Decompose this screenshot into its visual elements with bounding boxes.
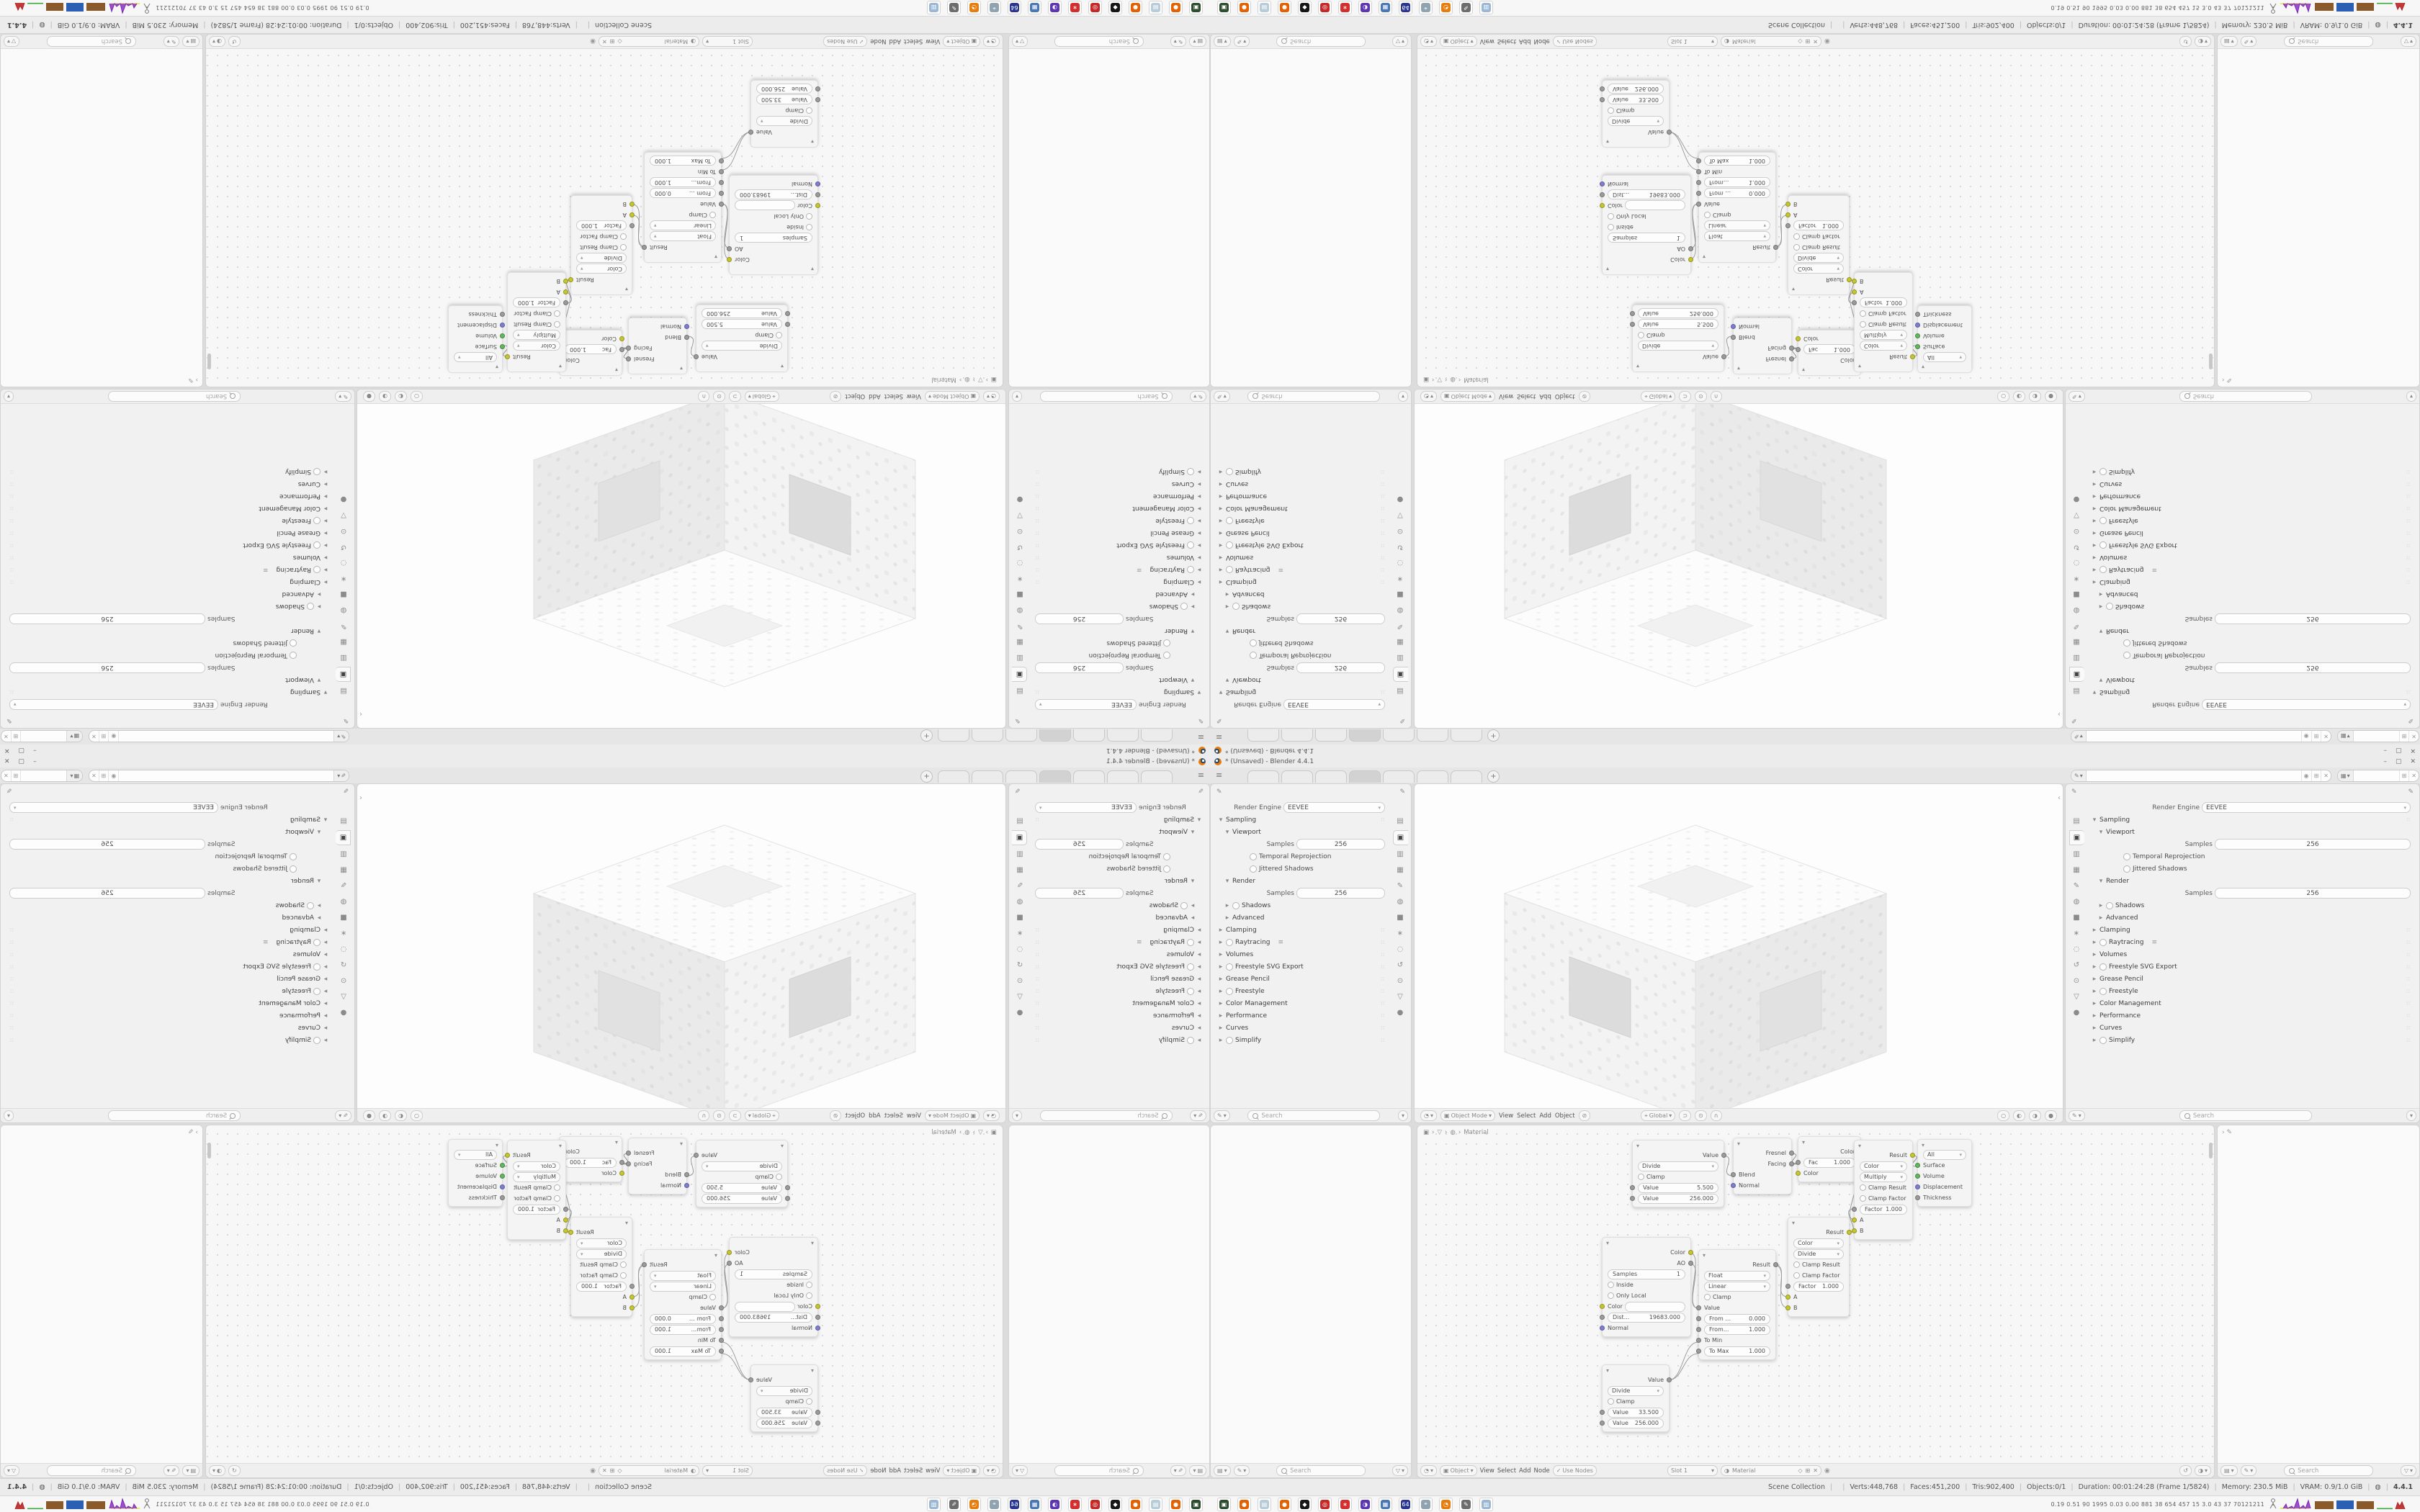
property-section-row[interactable]: ▸ Simplify ∷: [1214, 466, 1389, 478]
material-output-node[interactable]: ▾ All▾SurfaceVolumeDisplacementThickness: [448, 305, 503, 373]
use-nodes-checkbox[interactable]: ✓Use Nodes: [823, 1465, 867, 1476]
refresh-button[interactable]: ↺: [2179, 1465, 2192, 1476]
property-section-row[interactable]: ▸ Volumes ∷: [1031, 552, 1206, 564]
property-section-row[interactable]: ▸ Shadows: [5, 600, 333, 613]
number-field[interactable]: Value33.500: [756, 95, 812, 105]
input-socket[interactable]: [785, 311, 790, 316]
property-section-row[interactable]: ▸ Raytracing ≡ ∷: [2087, 564, 2415, 576]
workspace-tab-2[interactable]: [1315, 729, 1347, 742]
number-field[interactable]: To Max1.000: [650, 156, 716, 166]
pin-icon[interactable]: ◉: [1824, 1467, 1830, 1475]
shader-type-dropdown[interactable]: ▣Object▾: [1440, 1465, 1477, 1476]
drag-dots-icon[interactable]: ∷: [9, 690, 13, 696]
world-tab[interactable]: ◍: [336, 603, 351, 617]
input-socket[interactable]: [1696, 202, 1701, 207]
property-section-row[interactable]: ▾ Render: [1214, 875, 1389, 887]
workspace-tab-1[interactable]: [1107, 729, 1139, 742]
snap-control-1[interactable]: ⊙: [1695, 1110, 1707, 1121]
search-input[interactable]: Search: [1054, 1465, 1144, 1476]
copy-icon[interactable]: ⊞: [99, 731, 109, 742]
orientation-dropdown[interactable]: ⌖Global▾: [1641, 1110, 1675, 1121]
mix-color-node-b[interactable]: ▾ ResultColor▾Divide▾Clamp ResultClamp F…: [570, 1217, 632, 1317]
viewlayer-name-field[interactable]: [2354, 731, 2399, 742]
number-field[interactable]: Value256.000: [756, 1418, 812, 1428]
node-collapse-header[interactable]: ▾: [1633, 362, 1724, 370]
checkbox[interactable]: [1638, 1174, 1644, 1180]
checkbox[interactable]: [620, 244, 627, 251]
section-toggle[interactable]: [1226, 567, 1233, 574]
input-socket[interactable]: [629, 1305, 635, 1310]
window-titlebar[interactable]: * (Unsaved) - Blender 4.4.1 – ▢ ✕: [0, 756, 1210, 768]
view-layer-tab[interactable]: ▦: [336, 635, 351, 649]
node-collapse-header[interactable]: ▾: [1734, 364, 1791, 372]
section-toggle[interactable]: [313, 567, 321, 574]
viewport-menu-object[interactable]: Object: [1555, 393, 1575, 400]
material-tab[interactable]: ●: [1393, 492, 1407, 506]
input-socket[interactable]: [815, 86, 820, 91]
math-divide-node-2[interactable]: ▾ ValueDivide▾ClampValue33.500Value256.0…: [1602, 80, 1670, 148]
sidebar-toggle-icon[interactable]: ‹: [359, 794, 362, 802]
drag-dots-icon[interactable]: ∷: [2407, 518, 2411, 524]
node-enum-dropdown[interactable]: Linear▾: [1704, 221, 1770, 231]
input-socket[interactable]: [1600, 1315, 1605, 1320]
modifiers-tab[interactable]: ∗: [1393, 927, 1407, 940]
gizmo-button[interactable]: ⊘: [830, 391, 842, 402]
drag-dots-icon[interactable]: ∷: [9, 469, 13, 475]
property-value-field[interactable]: 256: [1035, 888, 1124, 899]
property-section-row[interactable]: ▾ Sampling ∷: [5, 814, 333, 826]
node-enum-dropdown[interactable]: Multiply▾: [513, 330, 560, 341]
fake-user-shield-icon[interactable]: ◇: [1798, 38, 1802, 45]
taskbar-inkscape-dark[interactable]: ◆: [1108, 1498, 1122, 1511]
property-section-row[interactable]: ▸ Shadows: [1031, 899, 1206, 912]
number-field[interactable]: From ...0.000: [1704, 1314, 1770, 1324]
node-enum-dropdown[interactable]: Divide▾: [576, 1249, 627, 1259]
scene-tab[interactable]: ✎: [336, 619, 351, 633]
drag-dots-icon[interactable]: ∷: [2407, 1038, 2411, 1043]
options-button[interactable]: ▾: [2406, 391, 2416, 402]
property-section-row[interactable]: ▸ Curves ∷: [2087, 478, 2415, 490]
mode-dropdown[interactable]: ▣Object Mode▾: [1440, 1110, 1495, 1121]
property-value-field[interactable]: EEVEE▾: [9, 699, 218, 710]
drag-dots-icon[interactable]: ∷: [2407, 690, 2411, 696]
output-tab[interactable]: ▥: [336, 651, 351, 665]
workspace-tab-6[interactable]: [1451, 729, 1482, 742]
section-toggle[interactable]: [2099, 542, 2107, 549]
property-section-row[interactable]: ▸ Freestyle ∷: [5, 515, 333, 527]
object-tab[interactable]: ■: [1013, 911, 1027, 924]
use-nodes-checkbox[interactable]: ✓Use Nodes: [1553, 36, 1597, 47]
workspace-tab-3[interactable]: [1039, 729, 1071, 742]
taskbar-document-viewer[interactable]: ▥: [1479, 1498, 1493, 1511]
number-field[interactable]: Value5.500: [1638, 1183, 1718, 1193]
math-divide-node[interactable]: ▾ ValueDivide▾ClampValue5.500Value256.00…: [696, 1140, 788, 1207]
filter-button[interactable]: ▽▾: [1012, 36, 1028, 47]
drag-dots-icon[interactable]: ∷: [1381, 543, 1385, 549]
tool-tab[interactable]: ▤: [2069, 814, 2084, 828]
node-enum-dropdown[interactable]: Color▾: [576, 264, 627, 274]
shading-mode-0[interactable]: ○: [1997, 391, 2009, 402]
output-socket[interactable]: [568, 277, 573, 282]
input-socket[interactable]: [1796, 1160, 1801, 1165]
drag-dots-icon[interactable]: ∷: [2407, 580, 2411, 585]
input-socket[interactable]: [629, 223, 635, 228]
number-field[interactable]: To Max1.000: [650, 1346, 716, 1356]
checkbox[interactable]: [1860, 1195, 1866, 1202]
node-enum-dropdown[interactable]: Divide▾: [702, 1161, 782, 1171]
physics-tab[interactable]: ↺: [1013, 540, 1027, 554]
object-tab[interactable]: ■: [2069, 911, 2084, 924]
filter-button[interactable]: ▽▾: [2401, 36, 2416, 47]
checkbox[interactable]: [2123, 652, 2130, 660]
node-collapse-header[interactable]: ▾: [629, 1140, 686, 1148]
physics-tab[interactable]: ↺: [2069, 958, 2084, 972]
section-toggle[interactable]: [1226, 1037, 1233, 1044]
object-tab[interactable]: ■: [1393, 911, 1407, 924]
checkbox[interactable]: [806, 213, 812, 220]
taskbar-purple-mascot-app[interactable]: ◑: [1048, 1, 1062, 15]
object-tab[interactable]: ■: [336, 911, 351, 924]
node-enum-dropdown[interactable]: Float▾: [1704, 232, 1770, 242]
data-tab[interactable]: ▽: [1013, 508, 1027, 522]
checkbox[interactable]: [1638, 332, 1644, 338]
material-tab[interactable]: ●: [1013, 1006, 1027, 1020]
property-section-row[interactable]: ▸ Advanced: [1031, 588, 1206, 600]
property-section-row[interactable]: ▸ Color Management ∷: [5, 503, 333, 515]
property-value-field[interactable]: EEVEE▾: [1283, 802, 1385, 813]
output-socket[interactable]: [505, 354, 510, 359]
data-tab[interactable]: ▽: [336, 990, 351, 1004]
shader-menu-select[interactable]: Select: [904, 1467, 923, 1475]
menger-sponge-object[interactable]: [530, 822, 919, 1123]
constraints-tab[interactable]: ⊙: [2069, 974, 2084, 988]
number-field[interactable]: Samples1: [1608, 233, 1685, 243]
mode-dropdown[interactable]: ▣Object Mode▾: [925, 1110, 980, 1121]
modifiers-tab[interactable]: ∗: [1013, 572, 1027, 585]
mix-color-node-b[interactable]: ▾ ResultColor▾Divide▾Clamp ResultClamp F…: [1788, 195, 1850, 295]
input-socket[interactable]: [1796, 336, 1801, 341]
property-section-row[interactable]: ▸ Clamping ∷: [5, 576, 333, 588]
taskbar-gimp[interactable]: ✎: [1459, 1498, 1473, 1511]
property-section-row[interactable]: ▸ Volumes ∷: [5, 552, 333, 564]
shader-menu-node[interactable]: Node: [1534, 1467, 1550, 1475]
pin-icon[interactable]: ◉: [109, 731, 119, 742]
taskbar-disk-64[interactable]: 64: [1008, 1498, 1021, 1511]
taskbar-red-settings[interactable]: ∗: [1068, 1, 1082, 15]
tool-tab[interactable]: ▤: [1393, 814, 1407, 828]
drag-dots-icon[interactable]: ∷: [2407, 989, 2411, 994]
checkbox[interactable]: [709, 1294, 716, 1300]
property-value-field[interactable]: 256: [9, 662, 205, 673]
modifiers-tab[interactable]: ∗: [2069, 927, 2084, 940]
drag-dots-icon[interactable]: ∷: [1035, 989, 1039, 994]
editor-type-dropdown[interactable]: ◔▾: [1420, 391, 1437, 402]
property-section-row[interactable]: ▾ Render: [5, 625, 333, 637]
taskbar-firefox-2[interactable]: ●: [1129, 1, 1142, 15]
drag-dots-icon[interactable]: ∷: [9, 555, 13, 561]
input-socket[interactable]: [785, 1185, 790, 1190]
node-collapse-header[interactable]: ▾: [1855, 362, 1912, 370]
property-section-row[interactable]: ▸ Freestyle SVG Export ∷: [1214, 539, 1389, 552]
property-section-row[interactable]: ▾ Render: [1214, 625, 1389, 637]
view-layer-tab[interactable]: ▦: [1393, 635, 1407, 649]
breadcrumb-chip-2[interactable]: ◍: [964, 376, 969, 383]
pin-icon[interactable]: ◉: [1824, 38, 1830, 45]
input-socket[interactable]: [1852, 1218, 1857, 1223]
tool-tab[interactable]: ▤: [2069, 684, 2084, 698]
property-section-row[interactable]: ▸ Color Management ∷: [2087, 503, 2415, 515]
workspace-tab-3[interactable]: [1349, 729, 1381, 742]
pin-icon[interactable]: ◉: [590, 38, 596, 45]
taskbar-disk-64[interactable]: 64: [1399, 1, 1412, 15]
taskbar-package-manager[interactable]: ▣: [1189, 1498, 1203, 1511]
property-value-field[interactable]: 256: [1035, 839, 1124, 850]
scene-tab[interactable]: ✎: [1013, 879, 1027, 893]
drag-dots-icon[interactable]: ∷: [2407, 531, 2411, 536]
number-field[interactable]: Samples1: [735, 1269, 812, 1279]
property-section-row[interactable]: ▸ Clamping ∷: [1031, 576, 1206, 588]
taskbar-disk-64[interactable]: 64: [1008, 1, 1021, 15]
property-section-row[interactable]: ▸ Freestyle ∷: [1031, 515, 1206, 527]
section-toggle[interactable]: [1187, 542, 1194, 549]
scene-tab[interactable]: ✎: [336, 879, 351, 893]
drag-dots-icon[interactable]: ∷: [9, 580, 13, 585]
search-input[interactable]: Search: [1276, 1465, 1366, 1476]
node-collapse-header[interactable]: ▾: [1603, 138, 1669, 145]
color-field[interactable]: [1625, 201, 1685, 211]
output-tab[interactable]: ▥: [336, 847, 351, 861]
render-tab[interactable]: ▣: [1013, 667, 1028, 682]
checkbox[interactable]: [1793, 233, 1800, 240]
drag-dots-icon[interactable]: ∷: [9, 1038, 13, 1043]
property-value-field[interactable]: 256: [1296, 888, 1385, 899]
tool-tab[interactable]: ▤: [336, 814, 351, 828]
input-socket[interactable]: [1852, 289, 1857, 294]
node-enum-dropdown[interactable]: Divide▾: [1638, 341, 1718, 351]
constraints-tab[interactable]: ⊙: [336, 524, 351, 538]
node-enum-dropdown[interactable]: Divide▾: [1638, 1161, 1718, 1171]
taskbar-blender[interactable]: ◔: [967, 1, 981, 15]
property-section-row[interactable]: ▸ Curves ∷: [1031, 478, 1206, 490]
input-socket[interactable]: [1785, 223, 1791, 228]
restore-button[interactable]: ▢: [2396, 758, 2402, 765]
property-section-row[interactable]: ▸ Raytracing ≡ ∷: [5, 564, 333, 576]
node-enum-dropdown[interactable]: Color▾: [513, 341, 560, 351]
search-input[interactable]: Search: [47, 36, 136, 47]
editor-type-dropdown[interactable]: ◔▾: [1420, 1110, 1437, 1121]
search-input[interactable]: Search: [1247, 391, 1380, 402]
scene-tab[interactable]: ✎: [2069, 619, 2084, 633]
drag-dots-icon[interactable]: ∷: [1381, 1013, 1385, 1019]
property-section-row[interactable]: ▸ Raytracing ≡ ∷: [1214, 936, 1389, 948]
panel-expand-icon[interactable]: › ✎: [2222, 376, 2232, 383]
shading-mode-2[interactable]: ◑: [379, 1110, 391, 1121]
input-socket[interactable]: [1600, 192, 1605, 197]
input-socket[interactable]: [815, 1421, 820, 1426]
scene-tab[interactable]: ✎: [1393, 879, 1407, 893]
output-socket[interactable]: [1789, 1161, 1794, 1166]
drag-dots-icon[interactable]: ∷: [1381, 567, 1385, 573]
list-icon[interactable]: ≡: [1278, 567, 1284, 574]
taskbar-firefox[interactable]: ●: [1237, 1498, 1251, 1511]
input-socket[interactable]: [1852, 300, 1857, 305]
search-input[interactable]: Search: [108, 391, 241, 402]
taskbar-display-settings[interactable]: ▦: [1028, 1, 1041, 15]
snap-control-1[interactable]: ⊙: [713, 391, 725, 402]
property-section-row[interactable]: ▾ Sampling ∷: [1214, 686, 1389, 698]
clear-icon[interactable]: ✕: [2408, 770, 2419, 781]
checkbox[interactable]: [290, 865, 297, 873]
property-section-row[interactable]: ▸ Simplify ∷: [1214, 1034, 1389, 1046]
viewport-menu-select[interactable]: Select: [884, 393, 903, 400]
search-input[interactable]: Search: [108, 1110, 241, 1121]
math-divide-node[interactable]: ▾ ValueDivide▾ClampValue5.500Value256.00…: [696, 305, 788, 372]
input-socket[interactable]: [563, 1207, 568, 1212]
editor-type-dropdown[interactable]: ◔▾: [1420, 36, 1437, 47]
constraints-tab[interactable]: ⊙: [1393, 524, 1407, 538]
property-section-row[interactable]: ▾ Viewport: [5, 674, 333, 686]
map-range-node[interactable]: ▾ ResultFloat▾Linear▾ClampValueFrom ...0…: [644, 1249, 722, 1360]
drag-dots-icon[interactable]: ∷: [9, 482, 13, 487]
node-collapse-header[interactable]: ▾: [1788, 1219, 1849, 1227]
number-field[interactable]: Value5.500: [702, 1183, 782, 1193]
workspace-tab-4[interactable]: [1383, 770, 1415, 783]
scene-selector[interactable]: ✎▾ ◉ ⊞ ✕: [89, 770, 349, 782]
node-collapse-header[interactable]: ▾: [1734, 1140, 1791, 1148]
node-collapse-header[interactable]: ▾: [751, 138, 817, 145]
node-collapse-header[interactable]: ▾: [751, 1367, 817, 1374]
property-section-row[interactable]: ▾ Render: [5, 875, 333, 887]
restore-button[interactable]: ▢: [19, 747, 25, 754]
input-socket[interactable]: [1696, 1327, 1701, 1332]
output-socket[interactable]: [1773, 1262, 1778, 1267]
input-socket[interactable]: [619, 336, 624, 341]
shading-mode-3[interactable]: ●: [2045, 1110, 2057, 1121]
output-socket[interactable]: [1910, 354, 1915, 359]
close-button[interactable]: ✕: [4, 758, 10, 765]
input-socket[interactable]: [1852, 1207, 1857, 1212]
input-socket[interactable]: [719, 158, 724, 163]
filter-button[interactable]: ▽▾: [2401, 1465, 2416, 1476]
search-input[interactable]: Search: [2179, 391, 2312, 402]
drag-dots-icon[interactable]: ∷: [2407, 506, 2411, 512]
shader-menu-select[interactable]: Select: [904, 38, 923, 45]
number-field[interactable]: To Max1.000: [1704, 156, 1770, 166]
math-divide-node-2[interactable]: ▾ ValueDivide▾ClampValue33.500Value256.0…: [750, 1364, 818, 1432]
mix-color-node-a[interactable]: ▾ ColorFac1.000Color: [559, 1136, 622, 1182]
property-value-field[interactable]: EEVEE▾: [2202, 802, 2411, 813]
menu-hamburger-icon[interactable]: ≡: [1216, 770, 1222, 780]
property-section-row[interactable]: ▸ Simplify ∷: [5, 466, 333, 478]
property-section-row[interactable]: ▸ Performance ∷: [1031, 490, 1206, 503]
modifiers-tab[interactable]: ∗: [1013, 927, 1027, 940]
shading-mode-2[interactable]: ◑: [2029, 391, 2041, 402]
property-section-row[interactable]: ▸ Color Management ∷: [1031, 997, 1206, 1009]
input-socket[interactable]: [1696, 169, 1701, 174]
drag-dots-icon[interactable]: ∷: [9, 989, 13, 994]
property-section-row[interactable]: ▾ Render: [1031, 625, 1206, 637]
property-section-row[interactable]: ▸ Volumes ∷: [2087, 552, 2415, 564]
input-socket[interactable]: [815, 97, 820, 102]
number-field[interactable]: Dist...19683.000: [735, 190, 812, 200]
property-section-row[interactable]: ▾ Sampling ∷: [1031, 814, 1206, 826]
shading-mode-2[interactable]: ◑: [2029, 1110, 2041, 1121]
output-socket[interactable]: [1789, 1151, 1794, 1156]
drag-dots-icon[interactable]: ∷: [2407, 952, 2411, 958]
math-divide-node-2[interactable]: ▾ ValueDivide▾ClampValue33.500Value256.0…: [750, 80, 818, 148]
input-socket[interactable]: [1630, 1196, 1635, 1201]
property-section-row[interactable]: ▾ Sampling ∷: [5, 686, 333, 698]
ambient-occlusion-node[interactable]: ▾ ColorAOSamples1InsideOnly LocalColorDi…: [729, 1237, 818, 1337]
section-toggle[interactable]: [1226, 542, 1233, 549]
property-section-row[interactable]: ▸ Shadows: [1214, 600, 1389, 613]
output-socket[interactable]: [1721, 1153, 1726, 1158]
section-toggle[interactable]: [313, 518, 321, 525]
drag-dots-icon[interactable]: ∷: [9, 543, 13, 549]
constraints-tab[interactable]: ⊙: [336, 974, 351, 988]
output-socket[interactable]: [642, 245, 647, 250]
search-input[interactable]: Search: [2284, 1465, 2373, 1476]
checkbox[interactable]: [620, 233, 627, 240]
node-collapse-header[interactable]: ▾: [560, 366, 622, 374]
taskbar-document-viewer[interactable]: ▥: [927, 1, 941, 15]
physics-tab[interactable]: ↺: [336, 540, 351, 554]
pin-icon[interactable]: ✎: [1015, 788, 1021, 796]
node-collapse-header[interactable]: ▾: [1603, 1367, 1669, 1374]
drag-dots-icon[interactable]: ∷: [1035, 567, 1039, 573]
filter-by-dropdown[interactable]: ✎▾: [163, 36, 180, 47]
property-section-row[interactable]: ▸ Simplify ∷: [2087, 1034, 2415, 1046]
input-socket[interactable]: [1600, 1304, 1605, 1309]
shading-mode-0[interactable]: ○: [411, 1110, 423, 1121]
property-section-row[interactable]: ▸ Freestyle SVG Export ∷: [1031, 960, 1206, 973]
taskbar-text-editor[interactable]: ▤: [1258, 1498, 1271, 1511]
property-section-row[interactable]: ▸ Freestyle ∷: [1031, 985, 1206, 997]
breadcrumb-chip-0[interactable]: ▣: [1423, 1129, 1429, 1136]
viewport-menu-add[interactable]: Add: [1539, 1112, 1551, 1120]
property-section-row[interactable]: ▸ Performance ∷: [1214, 1009, 1389, 1022]
world-tab[interactable]: ◍: [1013, 603, 1027, 617]
taskbar-red-badge-tool[interactable]: ◎: [1088, 1498, 1102, 1511]
ambient-occlusion-node[interactable]: ▾ ColorAOSamples1InsideOnly LocalColorDi…: [1602, 175, 1691, 275]
taskbar-gimp[interactable]: ✎: [947, 1498, 961, 1511]
drag-dots-icon[interactable]: ∷: [1035, 469, 1039, 475]
physics-tab[interactable]: ↺: [1393, 540, 1407, 554]
viewport-menu-object[interactable]: Object: [1555, 1112, 1575, 1120]
particles-tab[interactable]: ◌: [2069, 556, 2084, 570]
output-socket[interactable]: [1688, 1261, 1693, 1266]
number-field[interactable]: Factor1.000: [1793, 1282, 1844, 1292]
input-socket[interactable]: [719, 191, 724, 196]
pin-icon[interactable]: ✎: [1015, 716, 1021, 724]
scene-tab[interactable]: ✎: [1013, 619, 1027, 633]
viewport-3d[interactable]: ‹ ◔▾ ▣Object Mode▾ ViewSelectAddObject ⊘…: [357, 389, 1006, 729]
workspace-tab-4[interactable]: [1005, 729, 1037, 742]
shader-editor[interactable]: ▣›▽›◍›Material ▾ ValueDivide▾ClampValue5…: [1417, 34, 2215, 387]
menger-sponge-object[interactable]: [530, 389, 919, 690]
material-output-node[interactable]: ▾ All▾SurfaceVolumeDisplacementThickness: [448, 1139, 503, 1207]
viewlayer-selector[interactable]: ▦▾ ⊞ ✕: [2337, 730, 2419, 742]
use-nodes-checkbox[interactable]: ✓Use Nodes: [1553, 1465, 1597, 1476]
output-socket[interactable]: [626, 356, 631, 361]
breadcrumb-chip-2[interactable]: ◍: [964, 1129, 969, 1136]
node-enum-dropdown[interactable]: All▾: [454, 1150, 497, 1160]
property-section-row[interactable]: ▾ Viewport: [1214, 826, 1389, 838]
workspace-tab-6[interactable]: [1451, 770, 1482, 783]
checkbox[interactable]: [1250, 865, 1257, 873]
mix-color-node-a[interactable]: ▾ ColorFac1.000Color: [559, 330, 622, 376]
drag-dots-icon[interactable]: ∷: [1035, 940, 1039, 945]
